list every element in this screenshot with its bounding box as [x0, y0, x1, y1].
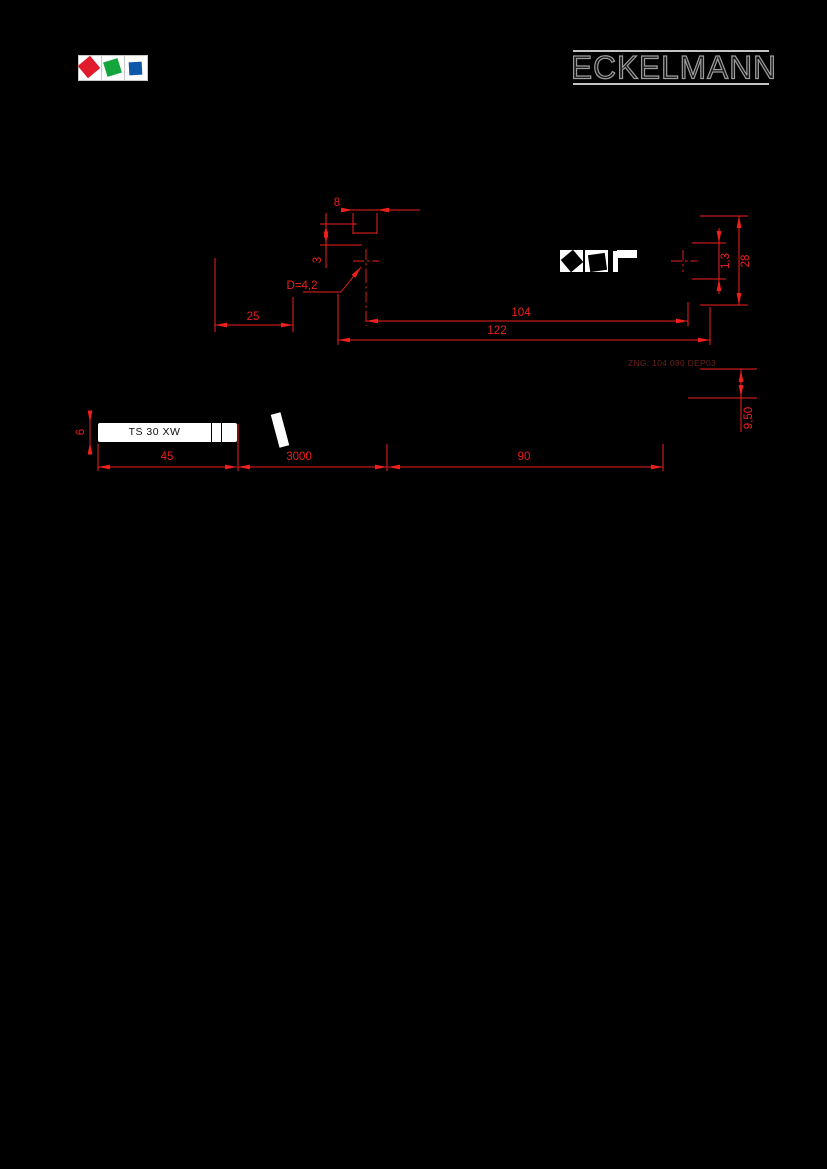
dim-45-text: 45 — [161, 451, 174, 463]
dim-122-text: 122 — [487, 325, 506, 337]
printed-logo-cell-2 — [585, 250, 608, 272]
label-divider — [211, 423, 212, 442]
printed-logo-fragment — [617, 250, 637, 258]
dim-104-text: 104 — [511, 307, 531, 319]
dim-1-3: 1,3 — [719, 228, 732, 294]
dim-90-text: 90 — [518, 451, 531, 463]
dim-8-text: 8 — [334, 197, 340, 209]
dim-104: 104 — [366, 272, 688, 326]
dim-28: 28 — [739, 216, 752, 305]
dim-8: 8 — [334, 197, 420, 234]
hole-callout: D=4,2 — [286, 249, 379, 292]
printed-logo-cell-1 — [560, 250, 583, 272]
drawing-page: ECKELMANN 8 3 — [0, 0, 827, 1169]
label-divider — [221, 423, 222, 442]
drawing-number-note: ZNG: 104 080 DEP03 — [628, 358, 716, 368]
printed-square-icon — [588, 253, 607, 272]
hole-diameter-text: D=4,2 — [286, 280, 317, 292]
type-label: TS 30 XW — [98, 423, 237, 442]
printed-logo — [560, 250, 608, 272]
dim-6-text: 6 — [75, 429, 87, 435]
dim-6: 6 — [75, 413, 90, 452]
type-label-text: TS 30 XW — [98, 423, 211, 442]
dim-90: 90 — [388, 444, 663, 471]
dim-122: 122 — [338, 294, 710, 345]
dim-3000-text: 3000 — [286, 451, 312, 463]
dim-25: 25 — [215, 258, 293, 332]
dim-25-text: 25 — [247, 311, 260, 323]
dim-3-text: 3 — [312, 257, 324, 263]
dim-9-50-text: 9,50 — [743, 407, 755, 429]
dim-3: 3 — [312, 213, 362, 268]
dimension-linework: 8 3 25 104 122 — [0, 0, 827, 1169]
dim-9-50: 9,50 — [688, 369, 757, 432]
dim-28-text: 28 — [740, 255, 752, 268]
dim-3000: 3000 — [238, 444, 387, 471]
dim-1-3-text: 1,3 — [720, 253, 732, 269]
printed-square-icon — [561, 250, 583, 272]
side-view-edges — [671, 216, 748, 305]
